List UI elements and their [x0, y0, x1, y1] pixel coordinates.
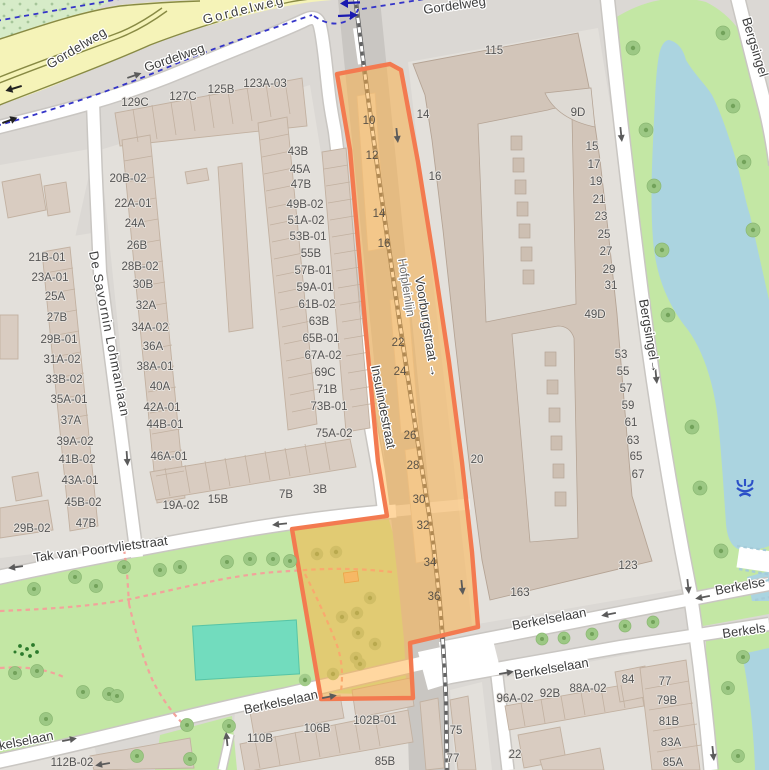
svg-text:79B: 79B	[657, 695, 678, 707]
svg-text:17: 17	[588, 159, 601, 171]
svg-text:65B-01: 65B-01	[302, 333, 339, 345]
svg-text:81B: 81B	[659, 716, 680, 728]
svg-text:46A-01: 46A-01	[150, 451, 187, 463]
svg-text:32A: 32A	[136, 300, 157, 312]
svg-text:45A: 45A	[290, 164, 311, 176]
svg-text:27B: 27B	[47, 312, 68, 324]
svg-text:125B: 125B	[208, 84, 235, 96]
svg-text:36: 36	[428, 591, 441, 603]
svg-text:28: 28	[407, 460, 420, 472]
svg-text:43B: 43B	[288, 146, 309, 158]
svg-text:23A-01: 23A-01	[31, 272, 68, 284]
svg-text:16: 16	[378, 238, 391, 250]
svg-text:32: 32	[417, 520, 430, 532]
svg-text:53: 53	[615, 349, 628, 361]
svg-text:19A-02: 19A-02	[162, 500, 199, 512]
svg-text:15: 15	[586, 141, 599, 153]
svg-text:75A-02: 75A-02	[315, 428, 352, 440]
svg-text:20: 20	[471, 454, 484, 466]
svg-text:55: 55	[617, 366, 630, 378]
svg-text:20B-02: 20B-02	[109, 173, 146, 185]
svg-text:47B: 47B	[76, 518, 97, 530]
svg-text:49D: 49D	[584, 309, 605, 321]
svg-text:43A-01: 43A-01	[61, 475, 98, 487]
svg-text:53B-01: 53B-01	[289, 231, 326, 243]
svg-text:51A-02: 51A-02	[287, 215, 324, 227]
svg-text:129C: 129C	[121, 97, 149, 109]
svg-text:19: 19	[590, 176, 603, 188]
svg-text:40A: 40A	[150, 381, 171, 393]
svg-text:30B: 30B	[133, 279, 154, 291]
svg-text:16: 16	[429, 171, 442, 183]
svg-text:10: 10	[363, 115, 376, 127]
svg-text:67: 67	[632, 469, 645, 481]
svg-text:24: 24	[394, 366, 407, 378]
svg-text:36A: 36A	[143, 341, 164, 353]
svg-text:63B: 63B	[309, 316, 330, 328]
svg-text:57: 57	[620, 383, 633, 395]
svg-text:77: 77	[447, 753, 460, 765]
svg-text:26: 26	[404, 430, 417, 442]
svg-text:106B: 106B	[304, 723, 331, 735]
svg-text:59: 59	[622, 400, 635, 412]
svg-text:3B: 3B	[313, 484, 327, 496]
svg-text:67A-02: 67A-02	[304, 350, 341, 362]
svg-text:25: 25	[598, 229, 611, 241]
svg-text:57B-01: 57B-01	[294, 265, 331, 277]
svg-text:29B-01: 29B-01	[40, 334, 77, 346]
svg-text:73B-01: 73B-01	[310, 401, 347, 413]
svg-text:61B-02: 61B-02	[298, 299, 335, 311]
svg-text:77: 77	[659, 676, 672, 688]
svg-text:38A-01: 38A-01	[136, 361, 173, 373]
svg-text:55B: 55B	[301, 248, 322, 260]
svg-text:9D: 9D	[571, 107, 586, 119]
svg-text:112B-02: 112B-02	[51, 757, 94, 769]
svg-text:71B: 71B	[317, 384, 338, 396]
svg-text:85B: 85B	[375, 756, 396, 768]
svg-text:83A: 83A	[661, 737, 682, 749]
svg-text:102B-01: 102B-01	[353, 715, 396, 727]
svg-text:22: 22	[509, 749, 522, 761]
svg-text:22: 22	[392, 337, 405, 349]
svg-text:123A-03: 123A-03	[243, 78, 286, 90]
svg-text:28B-02: 28B-02	[121, 261, 158, 273]
svg-text:35A-01: 35A-01	[50, 394, 87, 406]
svg-text:92B: 92B	[540, 688, 561, 700]
svg-text:115: 115	[485, 45, 503, 57]
svg-text:61: 61	[625, 417, 638, 429]
svg-text:26B: 26B	[127, 240, 148, 252]
svg-text:59A-01: 59A-01	[296, 282, 333, 294]
svg-text:34A-02: 34A-02	[131, 322, 168, 334]
svg-text:65: 65	[630, 451, 643, 463]
svg-text:31A-02: 31A-02	[43, 354, 80, 366]
svg-text:37A: 37A	[61, 415, 82, 427]
svg-text:22A-01: 22A-01	[114, 198, 151, 210]
svg-text:31: 31	[605, 280, 618, 292]
svg-text:21B-01: 21B-01	[28, 252, 65, 264]
svg-text:39A-02: 39A-02	[56, 436, 93, 448]
svg-text:44B-01: 44B-01	[146, 419, 183, 431]
svg-text:84: 84	[622, 674, 635, 686]
svg-text:21: 21	[593, 194, 606, 206]
svg-text:7B: 7B	[279, 489, 293, 501]
svg-text:49B-02: 49B-02	[286, 199, 323, 211]
svg-text:33B-02: 33B-02	[45, 374, 82, 386]
svg-text:14: 14	[373, 208, 386, 220]
svg-text:69C: 69C	[314, 367, 335, 379]
svg-text:12: 12	[366, 150, 379, 162]
svg-text:41B-02: 41B-02	[58, 454, 95, 466]
svg-text:34: 34	[424, 557, 437, 569]
svg-text:45B-02: 45B-02	[64, 497, 101, 509]
svg-text:123: 123	[618, 560, 637, 572]
svg-text:25A: 25A	[45, 291, 66, 303]
svg-text:63: 63	[627, 435, 640, 447]
svg-text:24A: 24A	[125, 218, 146, 230]
svg-text:110B: 110B	[247, 733, 273, 745]
svg-text:163: 163	[510, 587, 529, 599]
svg-text:27: 27	[600, 246, 613, 258]
svg-text:30: 30	[413, 494, 426, 506]
svg-text:15B: 15B	[208, 494, 229, 506]
svg-text:47B: 47B	[291, 179, 312, 191]
svg-text:85A: 85A	[663, 757, 684, 769]
svg-text:42A-01: 42A-01	[143, 402, 180, 414]
svg-text:75: 75	[450, 725, 463, 737]
svg-text:14: 14	[417, 109, 430, 121]
svg-text:29: 29	[603, 264, 616, 276]
svg-text:96A-02: 96A-02	[496, 693, 533, 705]
svg-text:29B-02: 29B-02	[13, 523, 50, 535]
svg-text:88A-02: 88A-02	[569, 683, 606, 695]
svg-text:127C: 127C	[169, 91, 197, 103]
svg-text:23: 23	[595, 211, 608, 223]
